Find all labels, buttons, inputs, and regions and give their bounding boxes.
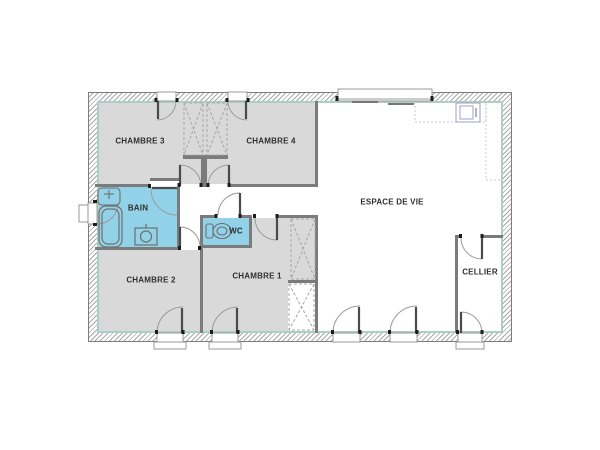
label-cellier: CELLIER [462, 268, 498, 277]
washer-icon [135, 224, 157, 245]
kitchen-sink-icon [415, 102, 502, 180]
label-espace-de-vie: ESPACE DE VIE [360, 198, 423, 207]
floor-plan: CHAMBRE 3 CHAMBRE 4 BAIN WC CHAMBRE 2 CH… [0, 0, 600, 450]
window-icon [79, 89, 484, 349]
plan-symbols [0, 0, 600, 450]
toilet-icon [206, 224, 231, 239]
label-wc: WC [229, 227, 243, 236]
label-chambre3: CHAMBRE 3 [115, 137, 164, 146]
washbasin-icon [98, 188, 120, 205]
bathtub-icon [99, 206, 122, 247]
label-chambre4: CHAMBRE 4 [246, 137, 295, 146]
label-chambre2: CHAMBRE 2 [126, 276, 175, 285]
label-bain: BAIN [128, 204, 148, 213]
door-jamb [93, 96, 484, 334]
label-chambre1: CHAMBRE 1 [232, 272, 281, 281]
door-leaf [152, 101, 482, 333]
